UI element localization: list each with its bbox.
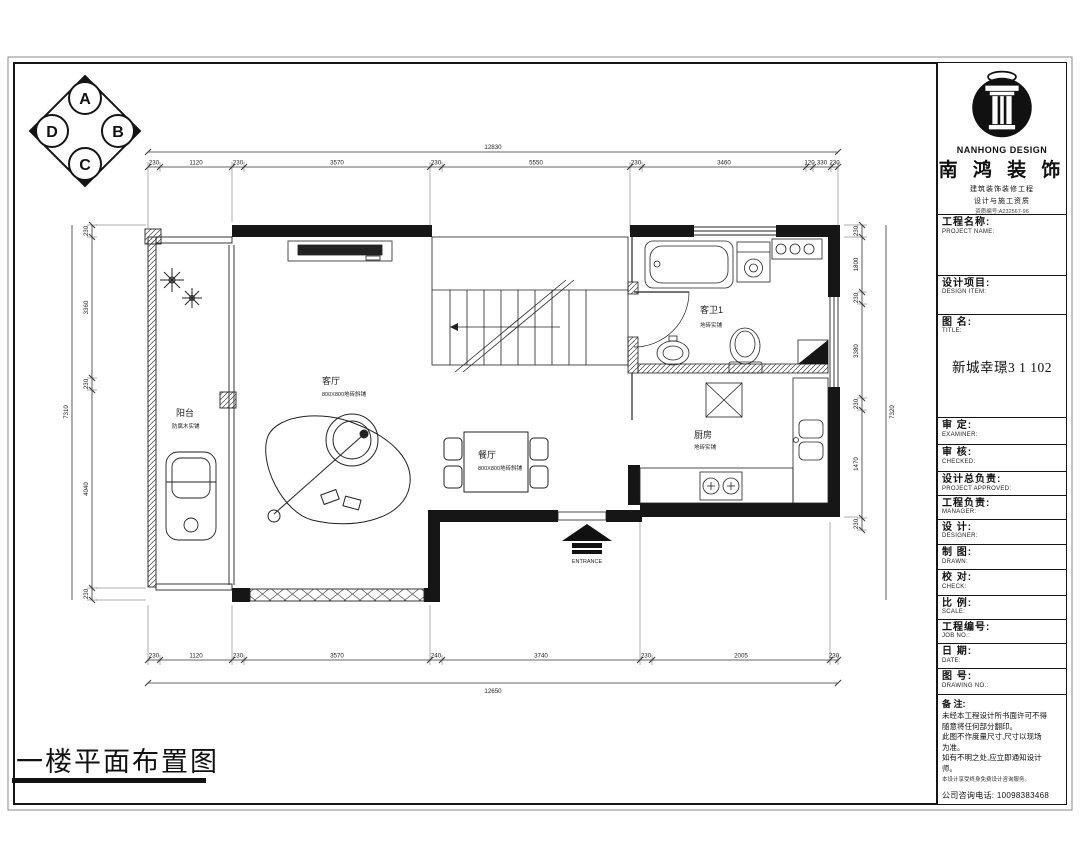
duct-shaft	[798, 340, 828, 364]
drawing-sheet: { "sheet": { "footer_title": "一楼平面布置图" }…	[0, 0, 1080, 864]
chair	[444, 438, 462, 460]
dim-label: 120	[804, 160, 815, 167]
tb-row-project-approved: 设计总负责: PROJECT APPROVED:	[938, 472, 1066, 495]
tb-row-job-no: 工程编号: JOB NO.:	[938, 620, 1066, 644]
note-line: 为准。	[942, 743, 1062, 754]
floor-plan-drawing: A B C D	[0, 0, 1080, 864]
tb-row-designer: 设 计: DESIGNER:	[938, 520, 1066, 545]
room-finish-kitchen: 地砖实铺	[694, 443, 717, 451]
tb-row-drawn: 制 图: DRAWN:	[938, 545, 1066, 570]
dim-label: 230	[431, 160, 442, 167]
tb-label: 审 核:	[942, 447, 1062, 459]
dining-set	[444, 432, 548, 492]
note-line: 此图不作度量尺寸,尺寸以现场	[942, 732, 1062, 743]
notes-label: 备 注:	[942, 698, 1062, 711]
note-small-print: 本设计享受终身免费设计咨询服务。	[942, 777, 1062, 785]
dim-label: 230	[829, 160, 840, 167]
dim-label: 2005	[734, 653, 748, 660]
dim-label: 230	[829, 653, 840, 660]
lattice-window	[250, 589, 424, 601]
vanity-counter	[772, 239, 822, 259]
bathtub	[645, 241, 733, 288]
tb-label: 图 名:	[942, 317, 1062, 329]
tb-sublabel: CHECKED:	[942, 459, 1062, 465]
room-finish-dining-room: 800X800地砖斜铺	[478, 464, 523, 472]
dim-label: 7320	[889, 405, 896, 419]
room-label-kitchen: 厨房	[694, 429, 712, 440]
tb-label: 设计总负责:	[942, 474, 1062, 486]
compass-b: B	[112, 124, 124, 141]
tb-label: 比 例:	[942, 598, 1062, 610]
tb-sublabel: DRAWN:	[942, 559, 1062, 565]
dim-label: 230	[853, 398, 860, 409]
chair	[530, 466, 548, 488]
tb-label: 设 计:	[942, 522, 1062, 534]
entrance-door	[558, 512, 606, 520]
orientation-compass: A B C D	[30, 76, 140, 186]
sheet-frame	[8, 57, 1072, 810]
dim-label: 3740	[534, 653, 548, 660]
dim-label: 240	[431, 653, 442, 660]
tb-sublabel: PROJECT APPROVED:	[942, 486, 1062, 492]
tb-row-title: 图 名: TITLE: 新城幸璟3 1 102	[938, 315, 1066, 418]
tb-row-scale: 比 例: SCALE:	[938, 596, 1066, 620]
tiled-partition	[638, 364, 828, 373]
credential-line: 设计与施工资质	[938, 196, 1066, 206]
fridge	[706, 383, 742, 417]
bath-door	[634, 292, 689, 347]
room-label-dining-room: 餐厅	[478, 449, 496, 460]
compass-d: D	[46, 124, 58, 141]
company-logo-section: NANHONG DESIGN 南 鸿 装 饰 建筑装饰装修工程 设计与施工资质 …	[938, 63, 1066, 215]
tb-label: 审 定:	[942, 420, 1062, 432]
dim-label: 3570	[330, 653, 344, 660]
dim-label: 3570	[330, 160, 344, 167]
dim-label: 230	[853, 292, 860, 303]
tb-sublabel: DATE:	[942, 658, 1062, 664]
dim-label: 230	[631, 160, 642, 167]
note-line: 随意将任何部分翻印。	[942, 722, 1062, 733]
dim-label: 1800	[853, 257, 860, 271]
chaise-lounge	[166, 452, 216, 540]
kitchen-sink	[794, 420, 824, 460]
tb-sublabel: DESIGNER:	[942, 533, 1062, 539]
tv-icon	[298, 245, 382, 255]
tb-row-design-item: 设计项目: DESIGN ITEM:	[938, 276, 1066, 315]
credential-number: 资质编号:A232567-96	[938, 207, 1066, 215]
stairs	[432, 237, 628, 372]
walls	[232, 225, 840, 602]
tb-sublabel: SCALE:	[942, 609, 1062, 615]
entrance-arrow-icon	[562, 524, 612, 541]
dim-label: 12650	[484, 688, 502, 695]
washing-machine	[737, 242, 770, 282]
tb-row-project-name: 工程名称: PROJECT NAME:	[938, 215, 1066, 276]
dim-label: 230	[853, 518, 860, 529]
pillow	[321, 490, 339, 505]
tb-sublabel: MANAGER:	[942, 509, 1062, 515]
windows	[229, 227, 838, 601]
dim-label: 230	[641, 653, 652, 660]
tb-row-date: 日 期: DATE:	[938, 644, 1066, 669]
tb-sublabel: CHECK:	[942, 584, 1062, 590]
wash-basin	[657, 336, 689, 365]
tb-sublabel: DRAWING NO.:	[942, 683, 1062, 689]
note-line: 师。	[942, 764, 1062, 775]
pillow	[343, 496, 361, 510]
company-logo-icon	[966, 69, 1038, 139]
dim-label: 230	[233, 653, 244, 660]
dim-label: 3380	[853, 344, 860, 358]
dim-label: 3360	[83, 300, 90, 314]
credential-line: 建筑装饰装修工程	[938, 184, 1066, 194]
dim-label: 230	[83, 588, 90, 599]
tb-label: 工程编号:	[942, 622, 1062, 634]
company-phone: 公司咨询电话: 10098383468	[942, 790, 1062, 801]
dim-label: 230	[233, 160, 244, 167]
room-labels: 阳台 防腐木实铺 客厅 800X800地砖斜铺 餐厅 800X800地砖斜铺 厨…	[172, 304, 723, 472]
room-label-guest-bath: 客卫1	[700, 304, 723, 315]
dim-label: 4040	[83, 482, 90, 496]
tb-label: 设计项目:	[942, 278, 1062, 290]
dim-label: 1120	[189, 653, 203, 660]
plant-icon	[182, 288, 202, 308]
title-block: NANHONG DESIGN 南 鸿 装 饰 建筑装饰装修工程 设计与施工资质 …	[936, 63, 1066, 804]
dim-label: 5550	[529, 160, 543, 167]
dim-label: 230	[83, 225, 90, 236]
tb-label: 制 图:	[942, 547, 1062, 559]
dim-label: 3460	[717, 160, 731, 167]
tb-sublabel: DESIGN ITEM:	[942, 289, 1062, 295]
entrance-label: ENTRANCE	[572, 559, 603, 565]
tb-sublabel: PROJECT NAME:	[942, 229, 1062, 235]
chair	[530, 438, 548, 460]
tb-label: 日 期:	[942, 646, 1062, 658]
plant-icon	[160, 268, 184, 292]
tb-sublabel: JOB NO.:	[942, 633, 1062, 639]
tb-label: 图 号:	[942, 671, 1062, 683]
dim-label: 230	[149, 160, 160, 167]
dim-label: 230	[149, 653, 160, 660]
dim-label: 1470	[853, 457, 860, 471]
tb-row-check: 校 对: CHECK:	[938, 570, 1066, 595]
compass-a: A	[79, 91, 91, 108]
sheet-title: 一楼平面布置图	[16, 740, 219, 779]
tb-row-drawing-no: 图 号: DRAWING NO.:	[938, 669, 1066, 694]
room-label-balcony: 阳台	[176, 407, 194, 418]
tb-sublabel: EXAMINER:	[942, 432, 1062, 438]
bathroom	[628, 237, 828, 373]
note-line: 如有不明之处,应立即通知设计	[942, 753, 1062, 764]
dim-label: 330	[817, 160, 828, 167]
tb-label: 工程名称:	[942, 217, 1062, 229]
tv-cabinet	[288, 241, 392, 261]
coffee-table	[326, 414, 378, 466]
drawing-title-value: 新城幸璟3 1 102	[942, 356, 1062, 376]
note-line: 未经本工程设计所书面许可不得	[942, 711, 1062, 722]
faucet-icon	[654, 261, 660, 267]
kitchen	[632, 373, 828, 503]
cooktop	[700, 472, 742, 500]
brand-name-cn: 南 鸿 装 饰	[938, 155, 1066, 182]
tb-label: 校 对:	[942, 572, 1062, 584]
dim-label: 230	[853, 225, 860, 236]
room-label-living-room: 客厅	[322, 375, 340, 386]
brand-name-en: NANHONG DESIGN	[938, 145, 1066, 155]
room-finish-balcony: 防腐木实铺	[172, 422, 200, 430]
dining-table	[464, 432, 528, 492]
dim-label: 230	[83, 378, 90, 389]
notes-section: 备 注: 未经本工程设计所书面许可不得 随意将任何部分翻印。 此图不作度量尺寸,…	[938, 695, 1066, 804]
sheet-title-underline	[12, 778, 206, 783]
tb-sublabel: TITLE:	[942, 328, 1062, 334]
dim-label: 12830	[484, 144, 502, 151]
dim-label: 1120	[189, 160, 203, 167]
tb-row-manager: 工程负责: MANAGER:	[938, 496, 1066, 520]
counter	[640, 468, 793, 503]
tb-row-examiner: 审 定: EXAMINER:	[938, 418, 1066, 445]
stair-arrow-icon	[450, 323, 458, 331]
sofa-group	[266, 414, 410, 524]
room-finish-living-room: 800X800地砖斜铺	[322, 390, 367, 398]
dim-label: 7310	[63, 405, 70, 419]
compass-c: C	[79, 157, 91, 174]
tb-row-checked: 审 核: CHECKED:	[938, 445, 1066, 472]
tb-label: 工程负责:	[942, 498, 1062, 510]
column	[220, 392, 236, 408]
chair	[444, 466, 462, 488]
room-finish-guest-bath: 地砖实铺	[700, 321, 723, 329]
entrance: ENTRANCE	[558, 512, 612, 565]
